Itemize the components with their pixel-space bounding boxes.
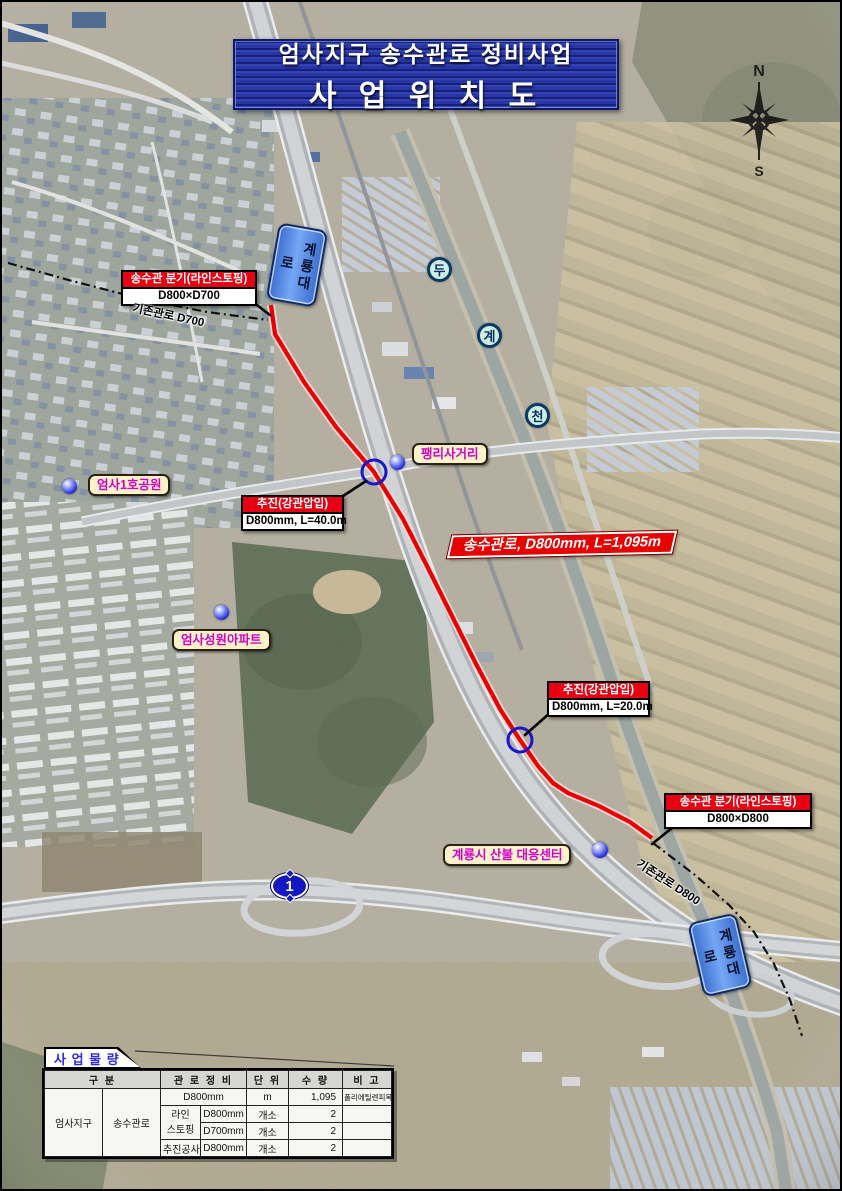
cell-r4-work: 추진공사	[161, 1140, 201, 1157]
cell-r4-unit: 개소	[247, 1140, 289, 1157]
marker-eomsa-park	[62, 479, 77, 494]
callout-jacking-20-body: D800mm, L=20.0m	[549, 700, 648, 715]
callout-jacking-20-header: 추진(강관압입)	[549, 683, 648, 700]
route-1-number: 1	[285, 878, 293, 895]
cell-r4-qty: 2	[289, 1140, 343, 1157]
col-header-remark: 비 고	[343, 1071, 392, 1089]
callout-branch-bottom-header: 송수관 분기(라인스토핑)	[666, 795, 810, 812]
compass-north-label: N	[753, 63, 765, 80]
callout-branch-top-header: 송수관 분기(라인스토핑)	[123, 272, 255, 289]
callout-jacking-40: 추진(강관압입) D800mm, L=40.0m	[241, 495, 344, 531]
col-header-qty: 수 량	[289, 1071, 343, 1089]
project-location-map-page: N S 엄사지구 송수관로 정비사업 사 업 위 치 도 계룡대로 계룡대로 두…	[0, 0, 842, 1191]
marker-eomsa-apartment	[214, 605, 229, 620]
cell-r2-qty: 2	[289, 1106, 343, 1123]
cell-r1-unit: m	[247, 1089, 289, 1106]
route-1-shield: 1	[271, 873, 308, 899]
callout-jacking-40-header: 추진(강관압입)	[243, 497, 342, 514]
cell-r3-unit: 개소	[247, 1123, 289, 1140]
cell-facility: 송수관로	[103, 1089, 161, 1157]
cell-r1-remark: 폴리에틸렌피복강관	[343, 1089, 392, 1106]
callout-jacking-20: 추진(강관압입) D800mm, L=20.0m	[547, 681, 650, 717]
cell-r1-qty: 1,095	[289, 1089, 343, 1106]
map-title-project: 엄사지구 송수관로 정비사업	[279, 35, 574, 69]
cell-r4-remark	[343, 1140, 392, 1157]
map-title-subtitle: 사 업 위 치 도	[309, 71, 543, 115]
cell-linestop-work: 라인 스토핑	[161, 1106, 201, 1140]
cell-r2-spec: D800mm	[201, 1106, 247, 1123]
cell-r2-unit: 개소	[247, 1106, 289, 1123]
cell-r3-qty: 2	[289, 1123, 343, 1140]
place-label-pyeongni-intersection: 팽리사거리	[412, 443, 488, 465]
marker-fire-center	[592, 842, 608, 858]
place-label-eomsa-park: 엄사1호공원	[88, 474, 170, 496]
place-label-eomsa-apartment: 엄사성원아파트	[172, 629, 271, 651]
quantity-table: 구 분 관 로 정 비 단 위 수 량 비 고 엄사지구 송수관로 D800mm…	[42, 1068, 394, 1159]
stream-label-cheon: 천	[525, 403, 550, 428]
cell-r4-spec: D800mm	[201, 1140, 247, 1157]
callout-branch-bottom-body: D800×D800	[666, 812, 810, 827]
cell-r3-spec: D700mm	[201, 1123, 247, 1140]
place-label-fire-center: 계룡시 산불 대응센터	[443, 844, 571, 866]
table-row: 엄사지구 송수관로 D800mm m 1,095 폴리에틸렌피복강관	[45, 1089, 392, 1106]
stream-label-du: 두	[427, 257, 452, 282]
cell-r3-remark	[343, 1123, 392, 1140]
col-header-pipe-work: 관 로 정 비	[161, 1071, 247, 1089]
col-header-unit: 단 위	[247, 1071, 289, 1089]
cell-district: 엄사지구	[45, 1089, 103, 1157]
map-title-box: 엄사지구 송수관로 정비사업 사 업 위 치 도	[233, 39, 619, 110]
callout-branch-bottom: 송수관 분기(라인스토핑) D800×D800	[664, 793, 812, 829]
col-header-category: 구 분	[45, 1071, 161, 1089]
cell-linestop-line2: 스토핑	[163, 1123, 198, 1138]
table-header-row: 구 분 관 로 정 비 단 위 수 량 비 고	[45, 1071, 392, 1089]
marker-pyeongni	[390, 455, 405, 470]
satellite-map: N S	[2, 2, 842, 1191]
stream-label-gye: 계	[477, 323, 502, 348]
compass-south-label: S	[754, 163, 763, 179]
route-spec-banner: 송수관로, D800mm, L=1,095m	[447, 531, 678, 559]
cell-r1-spec: D800mm	[161, 1089, 247, 1106]
cell-linestop-line1: 라인	[163, 1108, 198, 1123]
callout-jacking-40-body: D800mm, L=40.0m	[243, 514, 342, 529]
cell-r2-remark	[343, 1106, 392, 1123]
vignette-overlay	[2, 2, 842, 1191]
